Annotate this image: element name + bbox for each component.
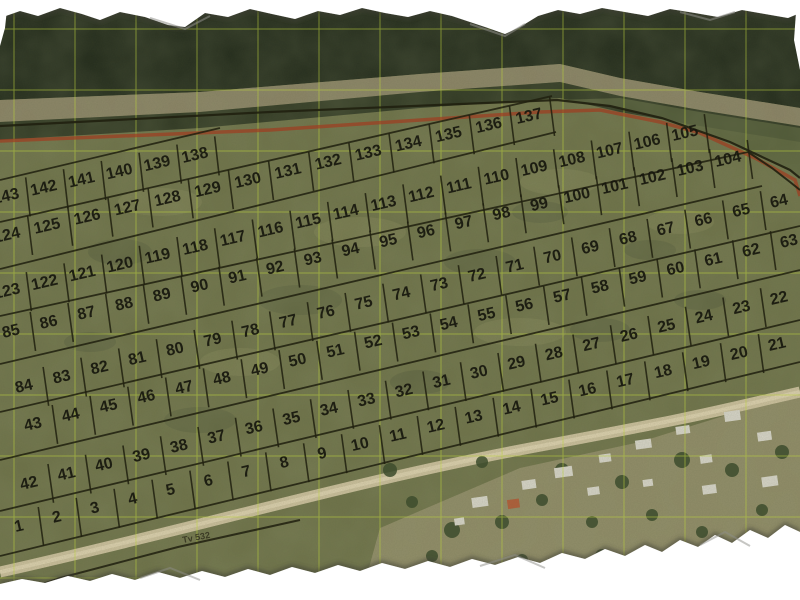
map-canvas: 1234567891011121314151617181920214241403… — [0, 0, 800, 600]
cadastral-map-image: 1234567891011121314151617181920214241403… — [0, 0, 800, 600]
